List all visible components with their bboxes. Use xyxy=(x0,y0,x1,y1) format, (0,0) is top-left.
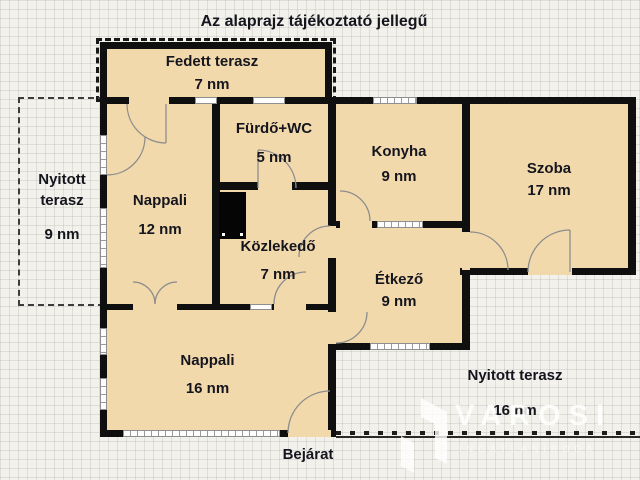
room-label-szoba: Szoba xyxy=(470,158,628,179)
entrance-label: Bejárat xyxy=(248,444,368,465)
room-area-szoba: 17 nm xyxy=(470,180,628,201)
room-area-kozlekedo: 7 nm xyxy=(220,264,336,285)
room-label-fedett-terasz: Fedett terasz xyxy=(107,51,317,72)
room-area-nyitott-terasz-left: 9 nm xyxy=(24,224,100,245)
room-area-konyha: 9 nm xyxy=(336,166,462,187)
floor-plan: Az alaprajz tájékoztató jellegű xyxy=(0,0,640,480)
room-area-etkezo: 9 nm xyxy=(336,291,462,312)
room-label-nyitott-terasz-left: Nyitott terasz xyxy=(24,169,100,211)
room-label-kozlekedo: Közlekedő xyxy=(220,236,336,257)
watermark: VAROSI INGATLANIRODA xyxy=(393,388,640,480)
room-label-nappali-12: Nappali xyxy=(107,190,213,211)
room-area-furdo-wc: 5 nm xyxy=(218,147,330,168)
room-area-fedett-terasz: 7 nm xyxy=(107,74,317,95)
room-label-furdo-wc: Fürdő+WC xyxy=(218,118,330,139)
room-area-nappali-16: 16 nm xyxy=(110,378,305,399)
room-label-konyha: Konyha xyxy=(336,141,462,162)
room-label-etkezo: Étkező xyxy=(336,269,462,290)
watermark-tagline: INGATLANIRODA xyxy=(459,444,597,454)
room-label-nyitott-terasz-bottom: Nyitott terasz xyxy=(430,365,600,386)
room-area-nappali-12: 12 nm xyxy=(107,219,213,240)
varosi-logo-icon xyxy=(399,396,455,476)
watermark-brand: VAROSI xyxy=(455,400,612,433)
room-label-nappali-16: Nappali xyxy=(110,350,305,371)
